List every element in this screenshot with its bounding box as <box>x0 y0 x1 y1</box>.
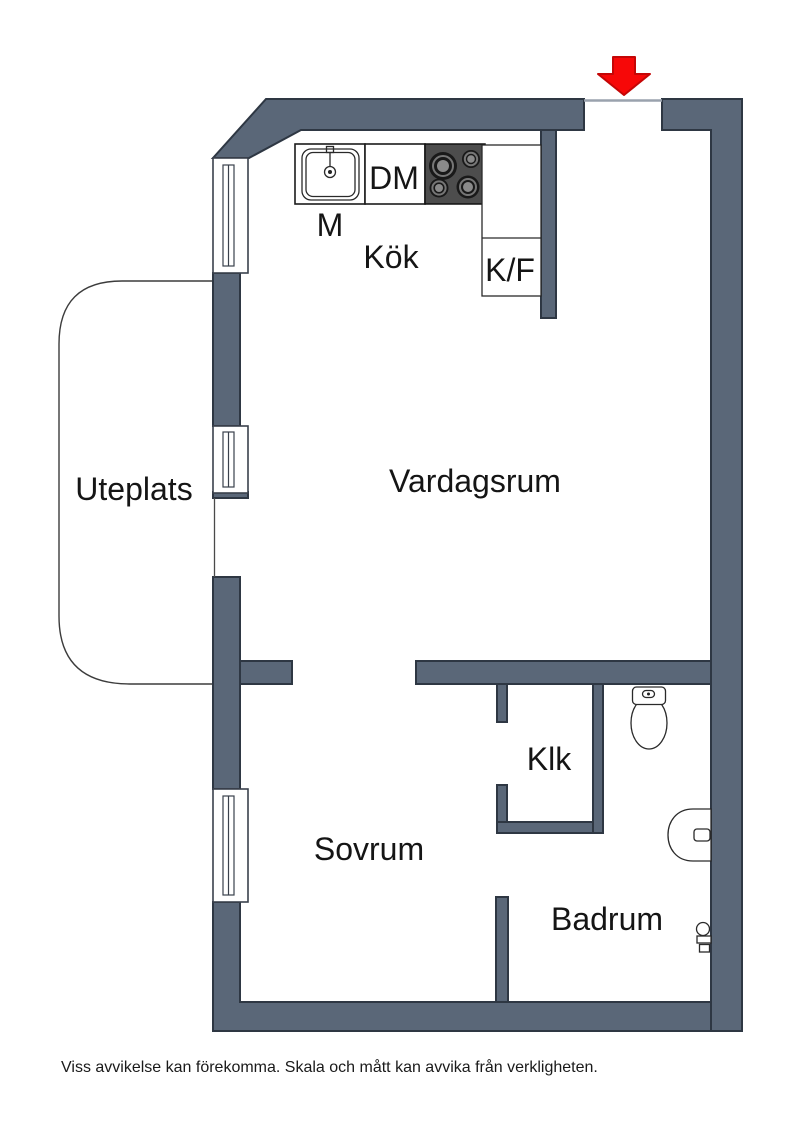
wall-left-upper <box>213 273 240 426</box>
window-2 <box>213 426 248 493</box>
faucet-dot <box>328 170 332 174</box>
room-label-kitchen: Kök <box>363 239 419 275</box>
mixer-base <box>700 945 710 953</box>
entry-arrow-icon <box>598 57 650 95</box>
wall-bedroom-bathroom <box>496 897 508 1002</box>
washbasin-tap <box>694 829 710 841</box>
window-3 <box>213 789 248 902</box>
room-label-closet: Klk <box>527 741 572 777</box>
window-frame <box>213 789 248 902</box>
wall-interior-main <box>416 661 711 684</box>
toilet-button-dot <box>647 693 650 696</box>
mixer-knob <box>697 923 710 936</box>
room-label-bathroom: Badrum <box>551 901 663 937</box>
shower-mixer-icon <box>697 923 712 953</box>
dishwasher-label: DM <box>369 160 419 196</box>
mixer-body <box>697 936 711 943</box>
floorplan-svg: DM M Kök K/F Vardagsrum Uteplats Klk Sov… <box>0 0 800 1131</box>
wall-kitchen-partition <box>541 130 556 318</box>
window-1 <box>213 158 248 273</box>
wall-left-middle <box>213 577 240 789</box>
washbasin-icon <box>668 809 711 861</box>
disclaimer-text: Viss avvikelse kan förekomma. Skala och … <box>61 1058 598 1076</box>
wall-top-right-and-right <box>662 99 742 1031</box>
fridge-freezer-label: K/F <box>485 252 535 288</box>
wall-closet-right <box>593 684 603 833</box>
room-label-patio: Uteplats <box>75 471 192 507</box>
wall-bedroom-stub <box>240 661 292 684</box>
window-frame <box>213 158 248 273</box>
burner-center <box>437 160 449 172</box>
toilet-icon <box>631 687 667 749</box>
stove-icon <box>425 144 485 204</box>
burner-center <box>467 155 475 163</box>
burner-center <box>435 184 443 192</box>
room-label-bedroom: Sovrum <box>314 831 424 867</box>
wall-closet-bottom <box>497 822 603 833</box>
sink-label: M <box>317 207 344 243</box>
window-frame <box>213 426 248 493</box>
room-label-living: Vardagsrum <box>389 463 561 499</box>
wall-closet-stub-top <box>497 684 507 722</box>
burner-center <box>463 182 473 192</box>
